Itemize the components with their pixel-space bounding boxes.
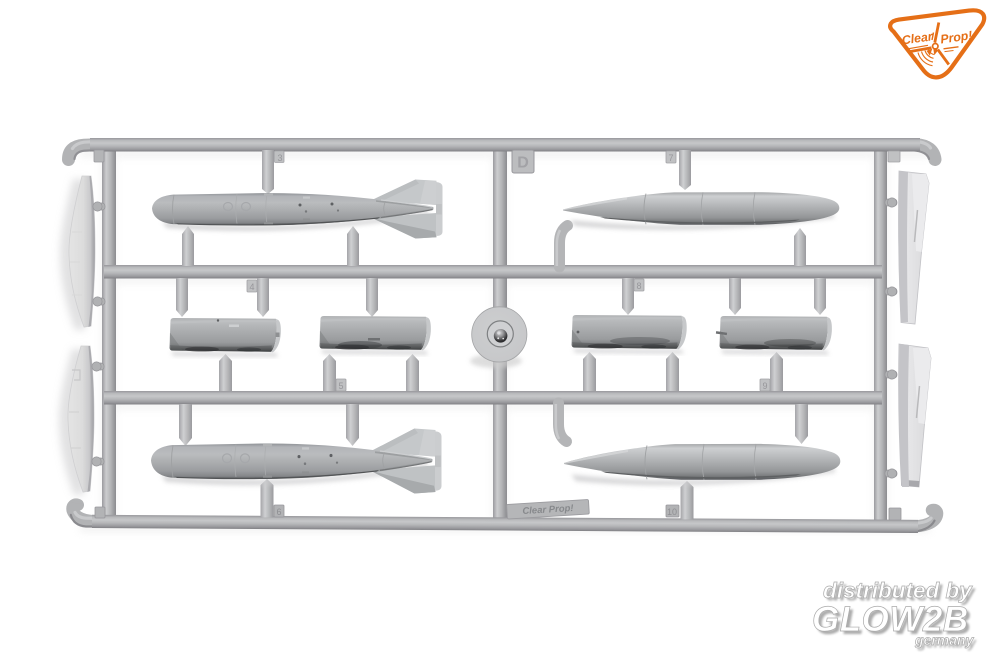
svg-text:4: 4 <box>249 282 254 292</box>
svg-text:7: 7 <box>668 153 673 163</box>
svg-text:D: D <box>517 155 529 172</box>
svg-text:germany: germany <box>914 632 975 648</box>
svg-text:8: 8 <box>636 281 641 291</box>
svg-text:9: 9 <box>762 381 767 391</box>
svg-text:10: 10 <box>667 507 677 517</box>
svg-text:3: 3 <box>277 153 282 163</box>
svg-text:5: 5 <box>338 381 343 391</box>
svg-text:6: 6 <box>276 507 281 517</box>
